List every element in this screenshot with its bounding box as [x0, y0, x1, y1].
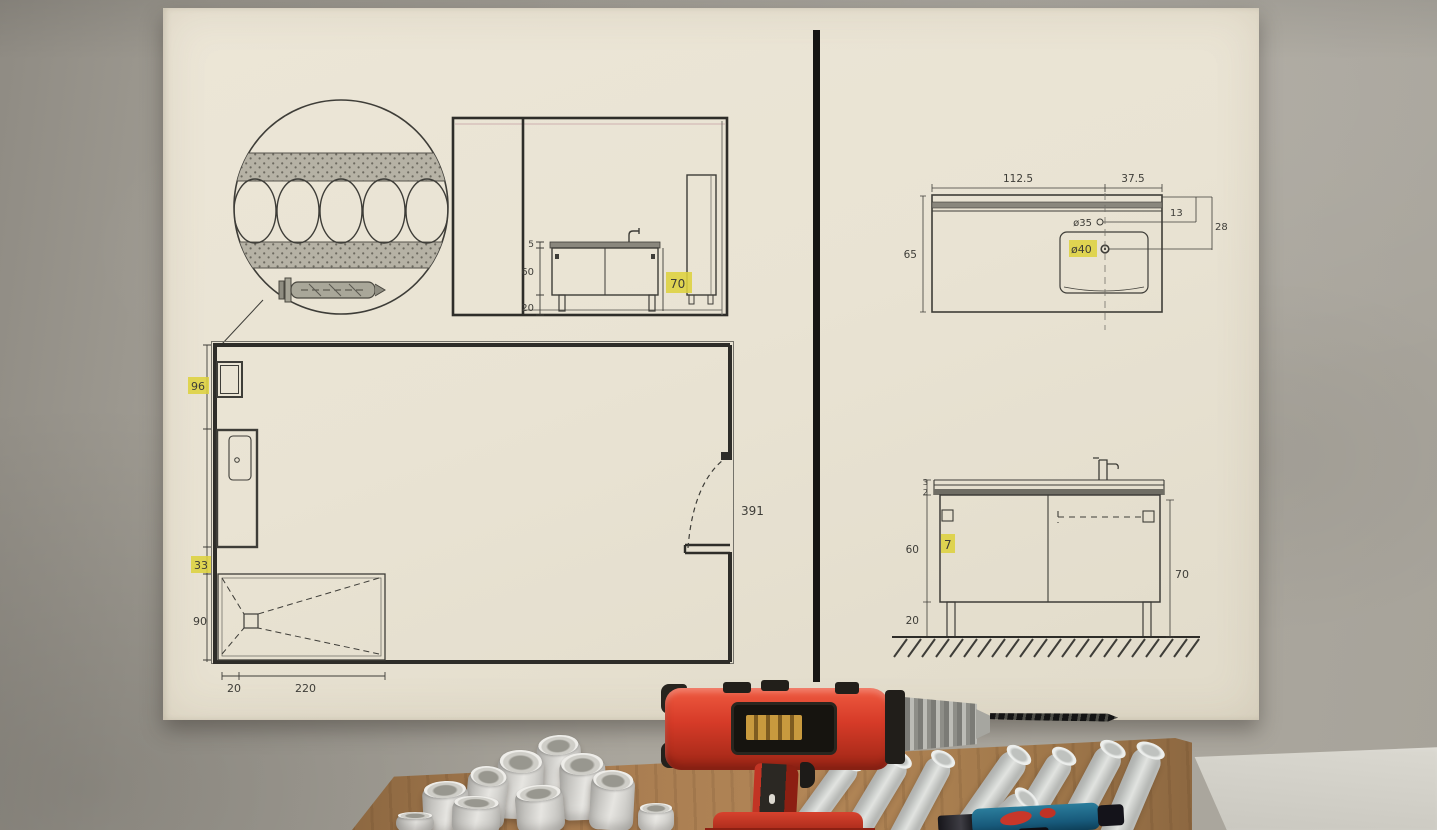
door-swing-arc: [688, 460, 723, 548]
pvc-elbow-fitting[interactable]: [589, 775, 636, 830]
bathroom-elevation-drawing: 5 60 20 70: [453, 118, 727, 315]
dim-faucet-offset-label: 13: [1170, 208, 1183, 219]
game-scene: 5 60 20 70 391: [0, 0, 1437, 830]
floor-plan-drawing: 391 96 33 90: [188, 342, 764, 696]
dim-hinge-label: 7: [944, 538, 952, 552]
label-faucet-hole: ø35: [1073, 218, 1092, 229]
door-hinge-block: [721, 452, 730, 460]
dim-cabinet2-label: 60: [906, 544, 919, 556]
dim-left-mid-label: 33: [194, 559, 208, 572]
dim-legs2-label: 20: [906, 615, 919, 627]
ground-hatching: [894, 639, 1199, 657]
dim-width-side-label: 37.5: [1121, 173, 1144, 185]
drill-body: [971, 802, 1100, 830]
pvc-elbow-fitting[interactable]: [396, 814, 434, 830]
pvc-elbow-fitting[interactable]: [514, 788, 565, 830]
drill-chuck: [905, 696, 977, 752]
drill-window: [731, 702, 837, 755]
faucet-icon: [629, 228, 639, 242]
drill-collar: [885, 690, 905, 764]
dim-left-top-label: 96: [191, 380, 205, 393]
faucet2-icon: [1093, 458, 1118, 480]
dim-width-main-label: 112.5: [1003, 173, 1033, 185]
drill-rear: [1097, 804, 1124, 826]
drill-battery-cells: [746, 715, 802, 740]
pvc-elbow-fitting[interactable]: [451, 799, 500, 830]
dim-offset-label: 20: [227, 682, 241, 695]
dim-column-height-label: 70: [670, 277, 685, 291]
shower-drain: [244, 614, 258, 628]
drill-chuck-tip: [976, 709, 990, 739]
dim-counter-label: 5: [528, 240, 534, 250]
drill-led: [769, 794, 775, 804]
dim-room-depth-label: 391: [741, 504, 764, 518]
dim-shower-depth-label: 90: [193, 615, 207, 628]
dim-height-label: 70: [1175, 568, 1189, 581]
drill-bit: [990, 712, 1118, 721]
vanity-front-view-drawing: 3 2 60 20 70 7: [892, 458, 1200, 657]
vanity-top-view-drawing: 65 112.5 37.5 13 28 ø35 ø40: [904, 173, 1228, 330]
drill-trigger: [800, 762, 815, 788]
drill-vent: [723, 682, 751, 693]
divider-line: [813, 30, 820, 682]
drill-vent: [835, 682, 859, 694]
hinge-plate: [942, 510, 953, 521]
dim-cabinet-label: 60: [521, 267, 534, 278]
dim-depth-label: 65: [904, 249, 917, 261]
wall-anchor-icon: [279, 278, 385, 302]
dim-drain-offset-label: 28: [1215, 222, 1228, 233]
drill-chuck: [938, 814, 977, 830]
blueprint-paper[interactable]: 5 60 20 70 391: [163, 8, 1259, 720]
blueprint-drawing: 5 60 20 70 391: [163, 8, 1259, 720]
drill-vent: [761, 680, 789, 691]
dim-legs-label: 20: [521, 303, 534, 314]
wall-anchor-detail: [222, 100, 455, 344]
dim-shower-width-label: 220: [295, 682, 316, 695]
label-drain-hole: ø40: [1071, 243, 1092, 256]
